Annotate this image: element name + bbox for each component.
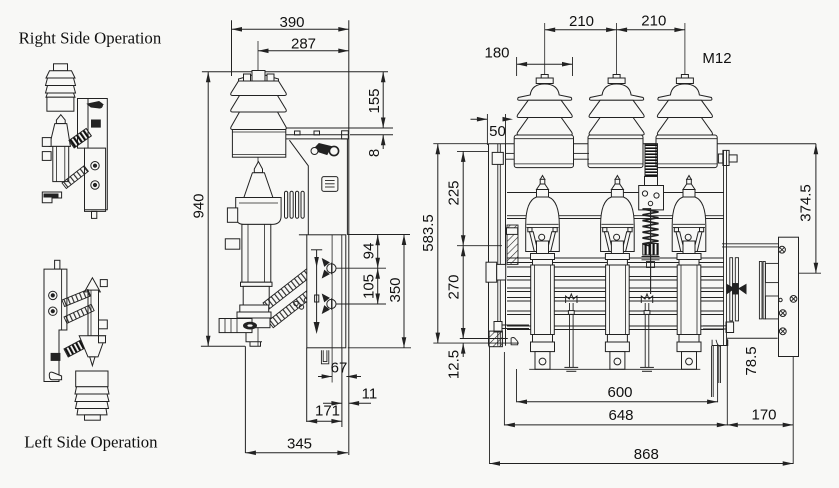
svg-text:50: 50 xyxy=(489,123,506,140)
svg-text:270: 270 xyxy=(446,274,463,299)
svg-text:345: 345 xyxy=(287,435,312,452)
svg-text:648: 648 xyxy=(608,407,633,424)
svg-text:171: 171 xyxy=(315,403,340,420)
svg-text:287: 287 xyxy=(291,35,316,52)
svg-text:Right Side Operation: Right Side Operation xyxy=(19,29,162,48)
svg-text:105: 105 xyxy=(361,274,378,299)
svg-text:78.5: 78.5 xyxy=(743,346,760,375)
svg-text:170: 170 xyxy=(751,406,776,423)
svg-text:M12: M12 xyxy=(702,50,731,67)
svg-text:868: 868 xyxy=(634,446,659,463)
svg-text:600: 600 xyxy=(607,384,632,401)
svg-text:583.5: 583.5 xyxy=(420,214,437,252)
svg-text:210: 210 xyxy=(641,12,666,29)
svg-text:180: 180 xyxy=(484,44,509,61)
svg-text:350: 350 xyxy=(387,277,404,302)
svg-text:12.5: 12.5 xyxy=(446,350,463,379)
svg-text:940: 940 xyxy=(191,193,208,218)
svg-text:374.5: 374.5 xyxy=(798,184,815,222)
svg-text:210: 210 xyxy=(569,13,594,30)
svg-text:11: 11 xyxy=(362,386,378,403)
svg-text:67: 67 xyxy=(331,360,348,377)
svg-text:155: 155 xyxy=(366,88,383,113)
svg-text:8: 8 xyxy=(366,149,383,157)
svg-text:94: 94 xyxy=(361,243,378,260)
svg-text:390: 390 xyxy=(279,14,304,31)
svg-text:225: 225 xyxy=(446,180,463,205)
svg-text:Left Side Operation: Left Side Operation xyxy=(24,433,158,452)
